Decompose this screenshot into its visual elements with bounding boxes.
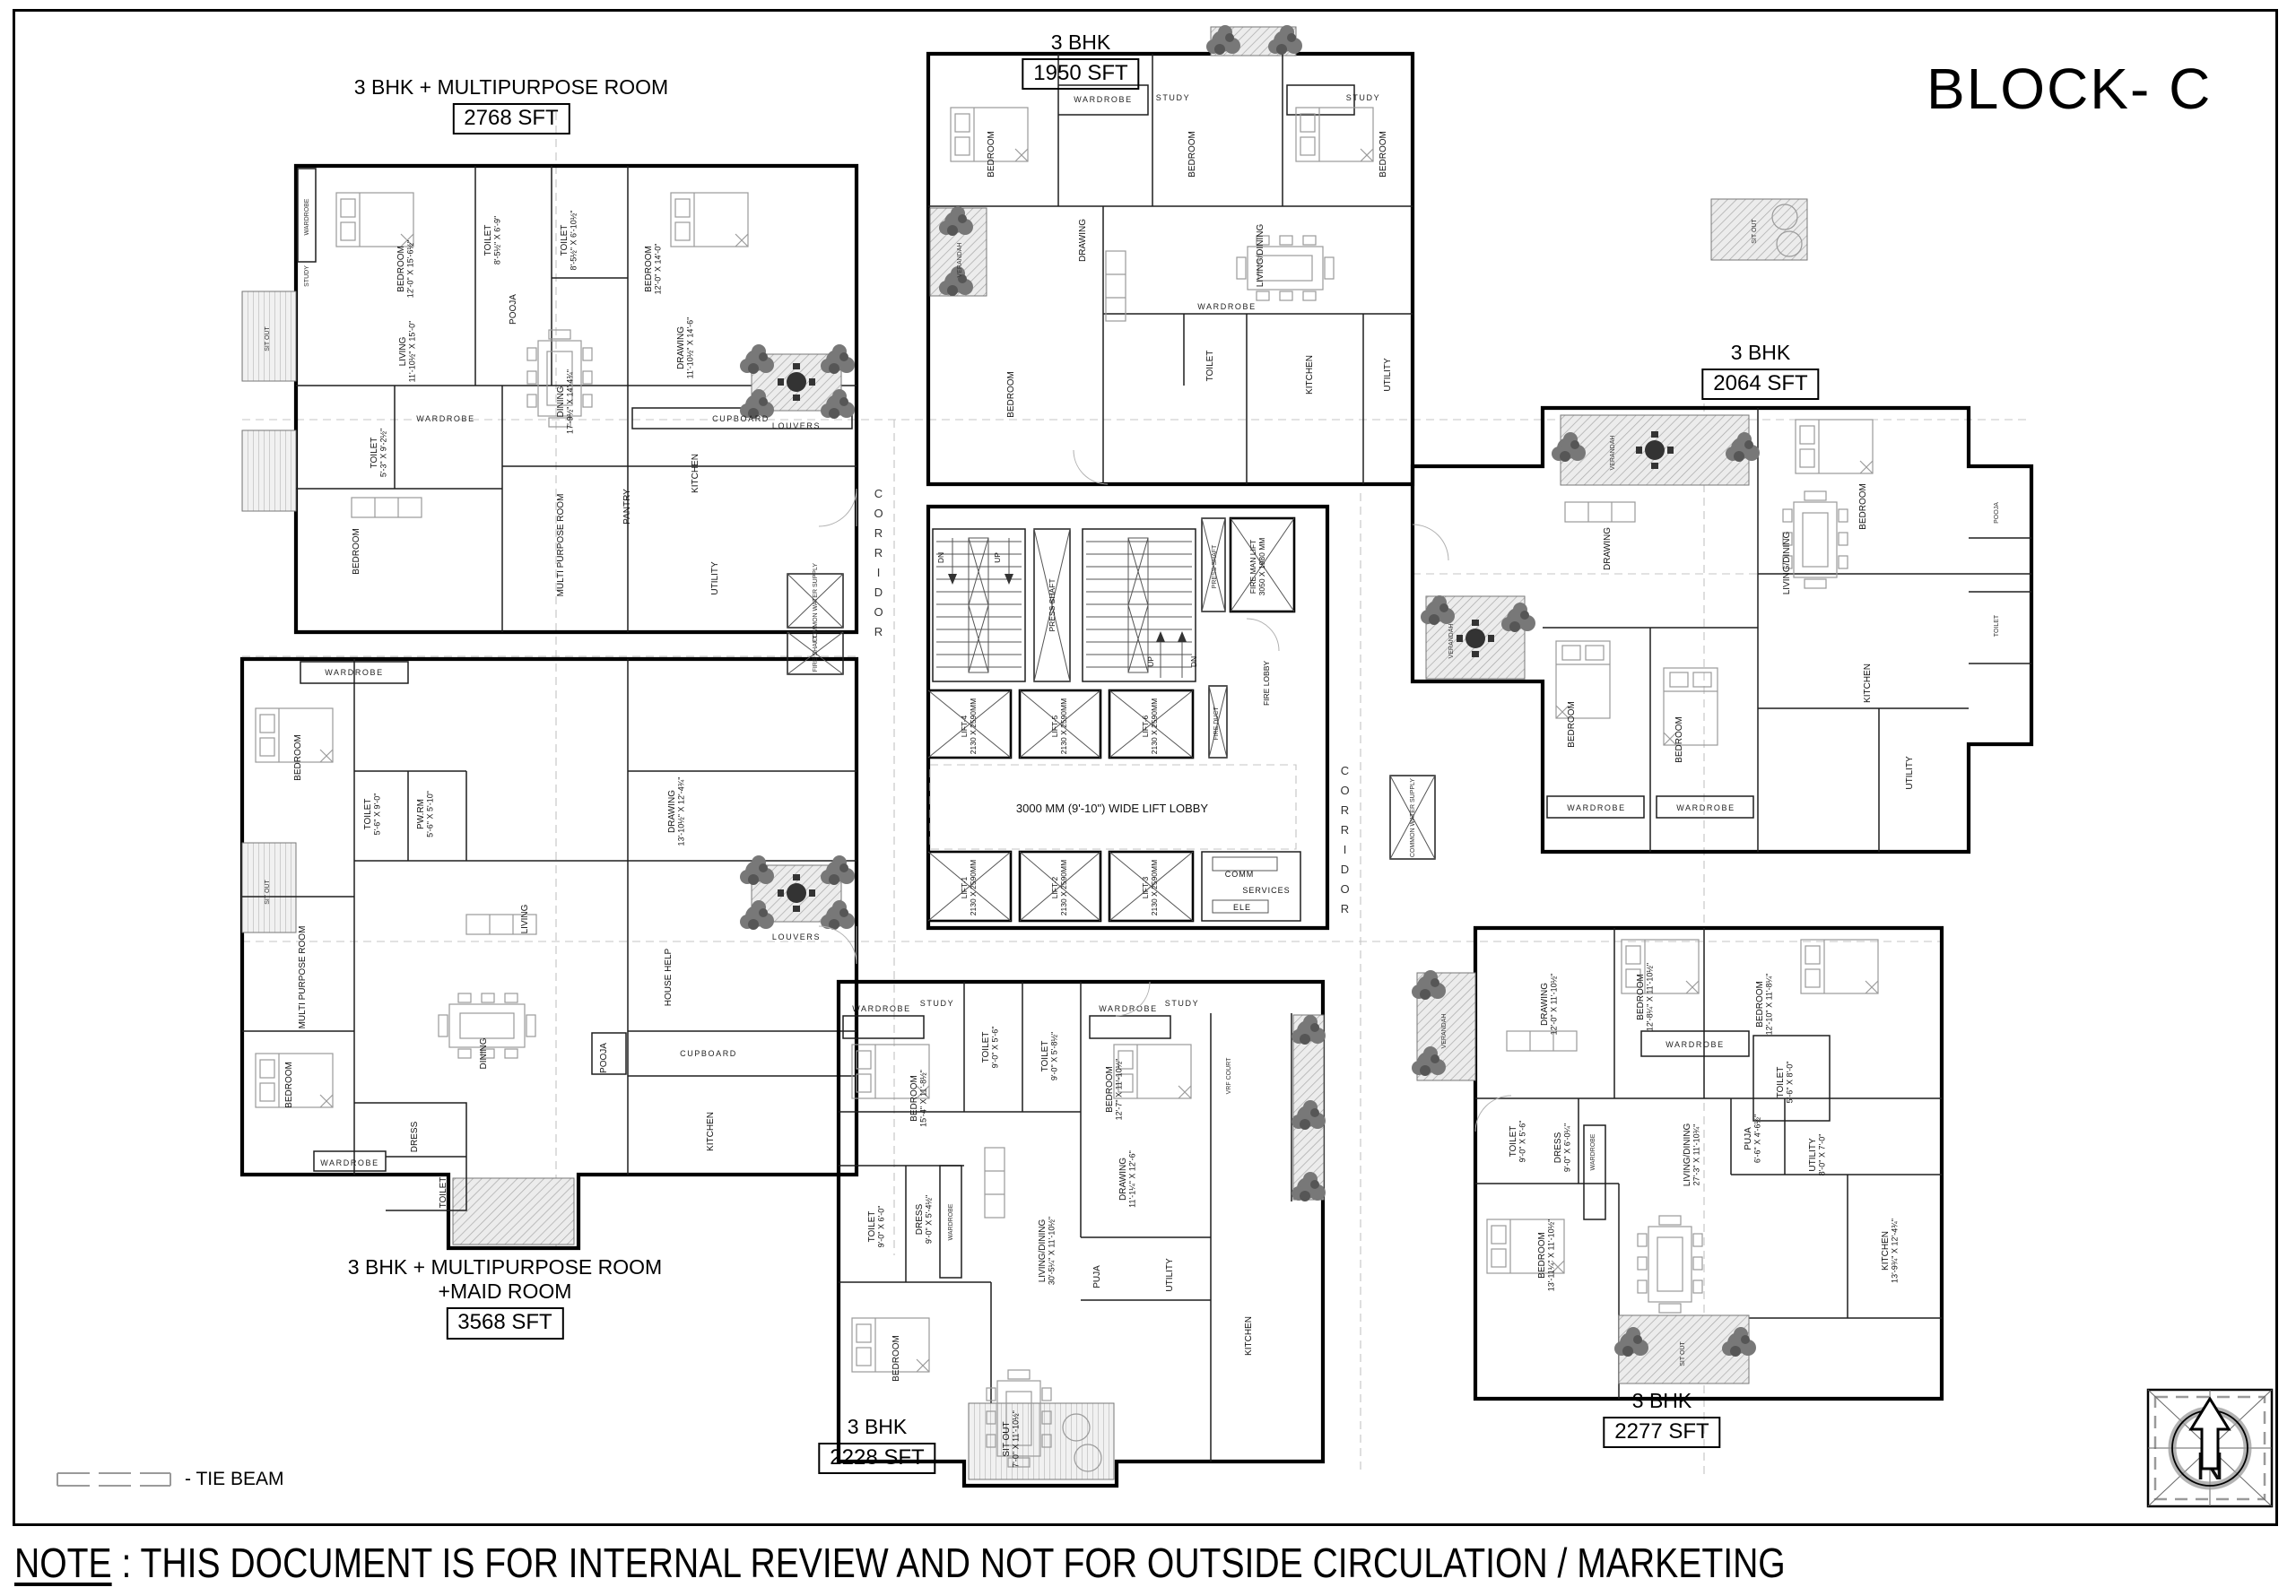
unit-2228-labels: WARDROBE STUDY BEDROOM15'-4" X 11'-8½" T… xyxy=(852,999,1254,1468)
room-label: KITCHEN xyxy=(1244,1316,1254,1356)
dn-label: DN xyxy=(936,552,945,563)
room-label: BEDROOM xyxy=(1567,701,1577,748)
fire-duct-label: FIRE DUCT xyxy=(1213,707,1220,741)
unit-area-badge: 2064 SFT xyxy=(1701,369,1819,400)
unit-type-line2: +MAID ROOM xyxy=(348,1279,662,1304)
room-label: WARDROBE xyxy=(320,1158,378,1167)
common-water-supply-label: COMMON WATER SUPPLY xyxy=(1410,778,1416,857)
room-label: PUJA xyxy=(1092,1265,1102,1288)
room-label: STUDY xyxy=(304,265,310,287)
room-label: TOILET xyxy=(1994,614,2000,637)
room-label: BEDROOM xyxy=(891,1335,901,1382)
dn-label: DN xyxy=(1189,656,1198,667)
room-label: WARDROBE xyxy=(1665,1040,1724,1049)
room-label: BEDROOM xyxy=(987,131,996,178)
lift-lobby-label: 3000 MM (9'-10") WIDE LIFT LOBBY xyxy=(1016,802,1209,815)
fire-shaft-label: FIRE SHAFT xyxy=(813,635,819,672)
corridor-label: CORRIDOR xyxy=(1338,764,1352,922)
comm-label: COMM xyxy=(1225,870,1255,879)
floor-plan-sheet: BEDROOM12'-0" X 15'-6½" TOILET8'-5½" X 6… xyxy=(0,0,2296,1596)
unit-type: 3 BHK xyxy=(1603,1389,1720,1413)
lift-label: LIFT-52130 X 2590MM xyxy=(1050,698,1068,754)
room-label: BEDROOM13'-11¼" X 11'-10½" xyxy=(1537,1219,1556,1292)
unit-2064-walls xyxy=(1413,199,2031,852)
room-label: DRESS xyxy=(410,1121,420,1152)
room-label: DRAWING11'-10½" X 14'-6" xyxy=(676,317,695,379)
room-label: SIT OUT xyxy=(265,326,271,351)
unit-type: 3 BHK xyxy=(1701,341,1819,365)
room-label: LIVING11'-10½" X 15'-0" xyxy=(398,321,417,383)
room-label: DINING xyxy=(479,1037,489,1069)
unit-2277-labels: VERANDAH DRAWING12'-0" X 11'-10½" BEDROO… xyxy=(1441,963,1900,1366)
room-label: TOILET5'-6" X 8'-0" xyxy=(1776,1062,1795,1104)
unit-type: 3 BHK + MULTIPURPOSE ROOM xyxy=(354,75,668,100)
fire-man-lift-label: FIRE MAN LIFT3050 X 1980 MM xyxy=(1248,538,1266,596)
unit-label-2064: 3 BHK 2064 SFT xyxy=(1701,341,1819,400)
room-label: UTILITY xyxy=(1165,1258,1175,1292)
services-label: SERVICES xyxy=(1242,886,1290,895)
room-label: PUJA6'-6" X 4'-6½" xyxy=(1744,1115,1762,1163)
room-label: CUPBOARD xyxy=(712,414,770,423)
room-label: TOILET8'-5½" X 6'-9" xyxy=(483,216,502,265)
room-label: UTILITY xyxy=(1383,358,1393,392)
unit-label-2768: 3 BHK + MULTIPURPOSE ROOM 2768 SFT xyxy=(354,75,668,134)
lift-label: LIFT-42130 X 2590MM xyxy=(960,698,978,754)
unit-type: 3 BHK + MULTIPURPOSE ROOM xyxy=(348,1255,662,1279)
room-label: KITCHEN xyxy=(706,1112,716,1151)
unit-2277-walls xyxy=(1417,928,1942,1399)
room-label: DRAWING xyxy=(1078,219,1088,262)
legend-tie-beam: - TIE BEAM xyxy=(56,1469,283,1490)
unit-1950-furniture xyxy=(939,25,1373,321)
room-label: BEDROOM12'-0" X 14'-0" xyxy=(644,244,663,295)
room-label: TOILET9'-0" X 5'-6" xyxy=(1509,1121,1527,1163)
room-label: WARDROBE xyxy=(1197,302,1256,311)
unit-label-1950: 3 BHK 1950 SFT xyxy=(1022,30,1139,90)
room-label: PANTRY xyxy=(622,489,632,525)
room-label: DRAWING11'-1¼" X 12'-6" xyxy=(1118,1150,1137,1208)
room-label: CUPBOARD xyxy=(680,1049,737,1058)
unit-2768-labels: BEDROOM12'-0" X 15'-6½" TOILET8'-5½" X 6… xyxy=(265,198,821,596)
room-label: LIVING/DINING xyxy=(1782,532,1792,595)
room-label: TOILET5'-6" X 9'-0" xyxy=(363,794,382,836)
unit-label-3568: 3 BHK + MULTIPURPOSE ROOM +MAID ROOM 356… xyxy=(348,1255,662,1340)
room-label: WARDROBE xyxy=(1099,1004,1157,1013)
floor-plan-drawing: BEDROOM12'-0" X 15'-6½" TOILET8'-5½" X 6… xyxy=(0,0,2296,1596)
up-label: UP xyxy=(1146,656,1155,667)
room-label: SIT OUT xyxy=(1752,219,1758,244)
room-label: TOILET8'-5½" X 6'-10½" xyxy=(560,211,578,271)
room-label: BEDROOM xyxy=(352,528,361,575)
unit-1950-labels: WARDROBE STUDY BEDROOM STUDY BEDROOM VER… xyxy=(957,93,1393,418)
room-label: MULTI PURPOSE ROOM xyxy=(556,494,566,597)
unit-area-badge: 1950 SFT xyxy=(1022,58,1139,90)
room-label: BEDROOM xyxy=(1858,483,1868,530)
room-label: SIT OUT xyxy=(265,880,271,905)
room-label: LIVING/DINING30'-5¼" X 11'-10½" xyxy=(1038,1217,1057,1285)
corridor-label: CORRIDOR xyxy=(872,487,885,645)
north-compass: N xyxy=(2144,1386,2277,1512)
room-label: KITCHEN xyxy=(1305,355,1315,395)
lift-label: LIFT-12130 X 2590MM xyxy=(960,860,978,915)
unit-area-badge: 2768 SFT xyxy=(452,103,570,134)
unit-2228-walls xyxy=(839,982,1324,1486)
room-label: BEDROOM xyxy=(293,734,303,781)
room-label: STUDY xyxy=(1156,93,1191,102)
room-label: POOJA xyxy=(1994,502,2000,524)
room-label: LIVING/DINING xyxy=(1256,224,1265,288)
unit-area-badge: 2277 SFT xyxy=(1603,1417,1720,1448)
press-shaft-label: PRESS SHAFT xyxy=(1212,544,1218,588)
press-shaft-label: PRESS SHAFT xyxy=(1048,578,1057,631)
room-label: TOILET5'-3" X 9'-2½" xyxy=(370,429,388,477)
disclaimer-note: NOTE : THIS DOCUMENT IS FOR INTERNAL REV… xyxy=(14,1539,1786,1587)
room-label: DRAWING xyxy=(1603,527,1613,570)
room-label: BEDROOM xyxy=(1674,716,1684,763)
room-label: HOUSE HELP xyxy=(664,948,674,1006)
up-label: UP xyxy=(993,552,1002,563)
room-label: STUDY xyxy=(1346,93,1381,102)
room-label: BEDROOM12'-10" X 11'-8¼" xyxy=(1755,974,1774,1036)
room-label: BEDROOM12'-8¼" X 11'-10½" xyxy=(1636,963,1655,1031)
unit-3568-furniture xyxy=(256,708,855,1107)
room-label: LOUVERS xyxy=(772,932,821,941)
unit-type: 3 BHK xyxy=(818,1415,935,1439)
room-label: WARDROBE xyxy=(1590,1133,1596,1170)
room-label: LOUVERS xyxy=(772,421,821,430)
room-label: VERANDAH xyxy=(957,243,963,278)
room-label: KITCHEN xyxy=(1863,664,1873,703)
room-label: VERANDAH xyxy=(1448,624,1455,659)
room-label: BEDROOM xyxy=(284,1062,294,1108)
core-walls xyxy=(787,450,1511,1132)
room-label: TOILET9'-0" X 6'-0" xyxy=(867,1206,886,1248)
room-label: PW.RM5'-6" X 5'-10" xyxy=(416,791,435,837)
unit-label-2228: 3 BHK 2228 SFT xyxy=(818,1415,935,1474)
room-label: BEDROOM12'-0" X 15'-6½" xyxy=(396,240,415,298)
room-label: STUDY xyxy=(920,999,955,1008)
room-label: POOJA xyxy=(599,1043,609,1073)
unit-type: 3 BHK xyxy=(1022,30,1139,55)
room-label: VERANDAH xyxy=(1610,436,1616,471)
room-label: TOILET xyxy=(439,1177,448,1209)
room-label: DINING17'-9½" X 14'-4¾" xyxy=(556,369,575,434)
room-label: LIVING xyxy=(520,904,530,933)
room-label: KITCHEN xyxy=(691,454,700,493)
note-prefix: NOTE xyxy=(14,1540,112,1586)
note-text: : THIS DOCUMENT IS FOR INTERNAL REVIEW A… xyxy=(112,1540,1786,1586)
room-label: STUDY xyxy=(1165,999,1200,1008)
room-label: VERANDAH xyxy=(1441,1014,1448,1049)
room-label: UTILITY8'-0" X 7'-0" xyxy=(1808,1134,1827,1176)
common-water-supply-label: COMMON WATER SUPPLY xyxy=(813,563,819,642)
legend-label: - TIE BEAM xyxy=(185,1469,283,1490)
room-label: TOILET xyxy=(1205,351,1215,382)
room-label: DRESS9'-0" X 6'-0¼" xyxy=(1553,1123,1572,1172)
unit-3568-labels: WARDROBE BEDROOM TOILET5'-6" X 9'-0" PW.… xyxy=(265,668,821,1208)
room-label: DRESS9'-0" X 5'-4½" xyxy=(915,1195,934,1244)
room-label: WARDROBE xyxy=(325,668,383,677)
sheet-title: BLOCK- C xyxy=(1926,56,2212,122)
room-label: WARDROBE xyxy=(1676,803,1735,812)
room-label: MULTI PURPOSE ROOM xyxy=(298,926,308,1029)
ele-label: ELE xyxy=(1233,903,1251,912)
room-label: TOILET9'-0" X 5'-6" xyxy=(981,1027,1000,1069)
room-label: WARDROBE xyxy=(1567,803,1625,812)
room-label: KITCHEN13'-9¾" X 12'-4¾" xyxy=(1881,1219,1900,1283)
room-label: BEDROOM xyxy=(1187,131,1197,178)
unit-area-badge: 2228 SFT xyxy=(818,1443,935,1474)
room-label: VRF COURT xyxy=(1226,1057,1232,1094)
fire-lobby-label: FIRE LOBBY xyxy=(1262,661,1271,706)
room-label: BEDROOM12'-7" X 11'-10½" xyxy=(1105,1059,1124,1121)
room-label: DRAWING12'-0" X 11'-10½" xyxy=(1540,974,1559,1036)
room-label: TOILET9'-0" X 5'-8½" xyxy=(1040,1032,1059,1080)
room-label: WARDROBE xyxy=(304,198,310,235)
tie-beam-symbol xyxy=(56,1470,172,1489)
room-label: BEDROOM15'-4" X 11'-8½" xyxy=(909,1070,928,1127)
room-label: UTILITY xyxy=(1905,756,1915,790)
room-label: WARDROBE xyxy=(852,1004,910,1013)
room-label: WARDROBE xyxy=(1074,95,1132,104)
unit-2064-labels: SIT OUT VERANDAH DRAWING LIVING/DINING B… xyxy=(1448,219,2000,812)
room-label: DRAWING13'-10½" X 12'-4¾" xyxy=(667,777,686,846)
room-label: BEDROOM xyxy=(1378,131,1388,178)
room-label: POOJA xyxy=(509,294,518,325)
room-label: WARDROBE xyxy=(948,1203,954,1240)
lift-label: LIFT-62130 X 2590MM xyxy=(1141,698,1159,754)
unit-label-2277: 3 BHK 2277 SFT xyxy=(1603,1389,1720,1448)
room-label: BEDROOM xyxy=(1006,371,1016,418)
room-label: UTILITY xyxy=(710,561,720,595)
lift-label: LIFT-32130 X 2590MM xyxy=(1141,860,1159,915)
room-label: LIVING/DINING27'-3" X 11'-10¾" xyxy=(1683,1123,1701,1187)
room-label: SIT OUT xyxy=(1680,1341,1686,1366)
lift-label: LIFT-22130 X 2590MM xyxy=(1050,860,1068,915)
room-label: WARDROBE xyxy=(416,414,474,423)
unit-area-badge: 3568 SFT xyxy=(446,1307,563,1339)
